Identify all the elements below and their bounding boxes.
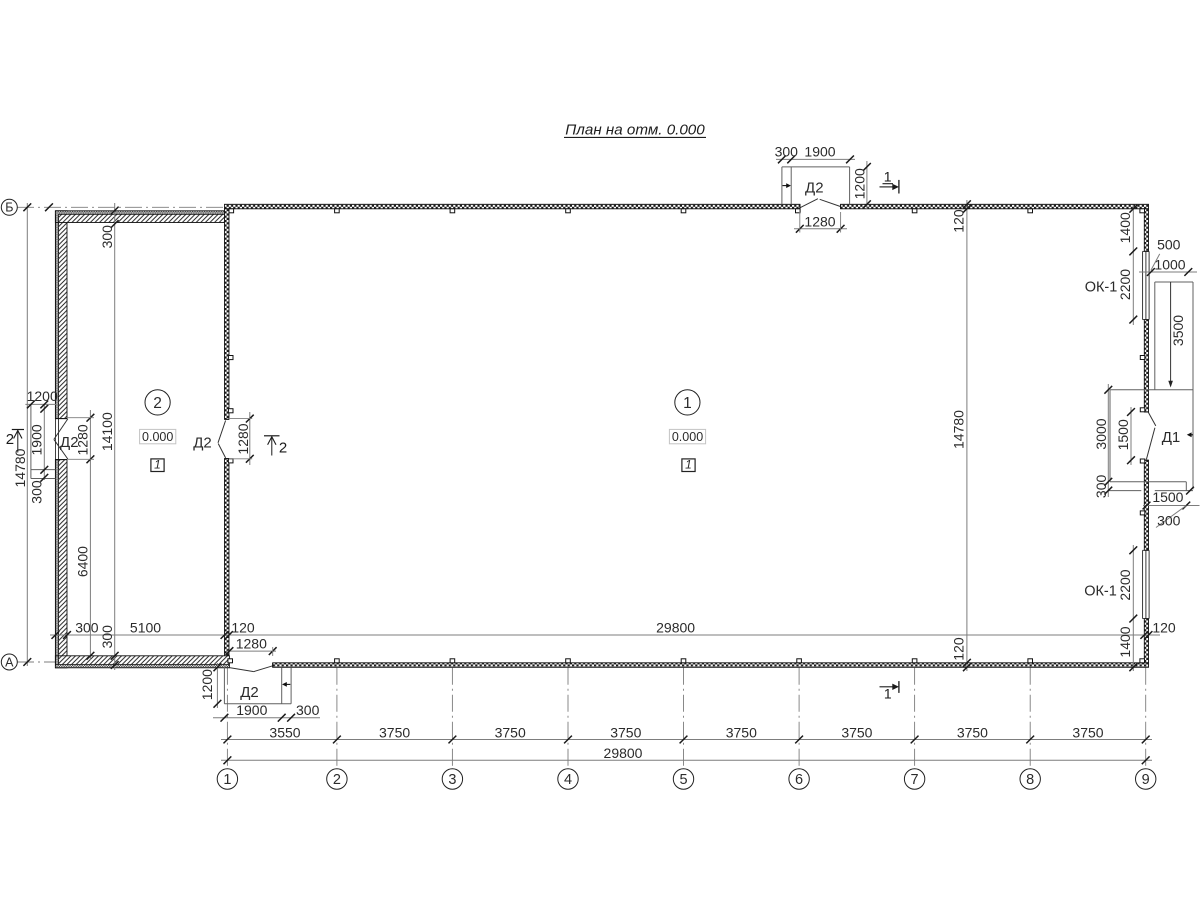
svg-text:3000: 3000 — [1093, 418, 1109, 449]
svg-text:1: 1 — [154, 458, 161, 472]
svg-text:1: 1 — [884, 169, 892, 185]
svg-text:1200: 1200 — [27, 388, 58, 404]
svg-text:1200: 1200 — [199, 669, 215, 700]
svg-text:14780: 14780 — [951, 410, 967, 449]
svg-text:3750: 3750 — [610, 724, 641, 740]
svg-text:1280: 1280 — [236, 636, 267, 652]
svg-text:300: 300 — [296, 702, 320, 718]
svg-text:2: 2 — [333, 772, 341, 788]
svg-text:120: 120 — [231, 619, 255, 635]
svg-text:3750: 3750 — [379, 724, 410, 740]
svg-text:3550: 3550 — [269, 724, 300, 740]
svg-text:1900: 1900 — [804, 144, 835, 160]
svg-text:14100: 14100 — [99, 412, 115, 451]
svg-text:120: 120 — [951, 637, 967, 661]
svg-text:ОК-1: ОК-1 — [1085, 280, 1118, 296]
svg-text:1400: 1400 — [1117, 626, 1133, 657]
svg-text:3750: 3750 — [957, 724, 988, 740]
svg-text:300: 300 — [99, 625, 115, 649]
svg-text:3750: 3750 — [495, 724, 526, 740]
svg-text:120: 120 — [1152, 619, 1176, 635]
svg-text:2200: 2200 — [1117, 569, 1133, 600]
svg-text:Д2: Д2 — [60, 434, 79, 451]
svg-text:5: 5 — [679, 772, 687, 788]
svg-text:14780: 14780 — [12, 448, 28, 487]
svg-text:ОК-1: ОК-1 — [1084, 584, 1117, 600]
svg-text:1200: 1200 — [851, 168, 867, 199]
svg-text:300: 300 — [1093, 475, 1109, 499]
svg-text:4: 4 — [564, 772, 572, 788]
svg-text:1900: 1900 — [29, 424, 45, 455]
svg-text:2: 2 — [279, 440, 287, 457]
svg-text:Б: Б — [5, 201, 13, 215]
svg-text:0.000: 0.000 — [142, 430, 173, 444]
svg-text:7: 7 — [911, 772, 919, 788]
svg-text:1: 1 — [884, 686, 892, 702]
svg-text:300: 300 — [75, 619, 99, 635]
svg-text:1: 1 — [223, 772, 231, 788]
svg-text:Д2: Д2 — [240, 684, 259, 701]
svg-text:6400: 6400 — [75, 546, 91, 577]
svg-text:2200: 2200 — [1117, 269, 1133, 300]
svg-text:3750: 3750 — [1072, 724, 1103, 740]
svg-text:А: А — [5, 655, 14, 669]
svg-text:2: 2 — [153, 395, 162, 412]
svg-text:3: 3 — [448, 772, 456, 788]
svg-text:Д1: Д1 — [1162, 429, 1181, 446]
svg-text:0.000: 0.000 — [672, 430, 703, 444]
svg-text:1: 1 — [683, 395, 692, 412]
svg-text:1000: 1000 — [1154, 256, 1185, 272]
svg-text:1400: 1400 — [1117, 212, 1133, 243]
svg-text:8: 8 — [1026, 772, 1034, 788]
svg-text:300: 300 — [775, 144, 799, 160]
svg-text:120: 120 — [951, 209, 967, 233]
svg-text:300: 300 — [1157, 513, 1181, 529]
svg-text:9: 9 — [1142, 772, 1150, 788]
svg-text:3500: 3500 — [1170, 315, 1186, 346]
svg-text:1900: 1900 — [236, 702, 267, 718]
svg-text:1280: 1280 — [804, 213, 835, 229]
svg-text:300: 300 — [99, 225, 115, 249]
svg-text:5100: 5100 — [130, 619, 161, 635]
svg-text:29800: 29800 — [656, 619, 695, 635]
svg-text:Д2: Д2 — [805, 180, 824, 197]
svg-text:300: 300 — [29, 480, 45, 504]
svg-text:1280: 1280 — [235, 423, 251, 454]
svg-text:1500: 1500 — [1115, 419, 1131, 450]
svg-text:500: 500 — [1157, 237, 1181, 253]
svg-text:6: 6 — [795, 772, 803, 788]
svg-text:2: 2 — [6, 431, 14, 448]
svg-text:План на отм. 0.000: План на отм. 0.000 — [565, 122, 705, 139]
svg-text:3750: 3750 — [726, 724, 757, 740]
svg-text:1500: 1500 — [1152, 489, 1183, 505]
svg-text:1: 1 — [685, 458, 692, 472]
svg-text:Д2: Д2 — [193, 434, 212, 451]
svg-text:3750: 3750 — [841, 724, 872, 740]
svg-text:29800: 29800 — [604, 745, 643, 761]
